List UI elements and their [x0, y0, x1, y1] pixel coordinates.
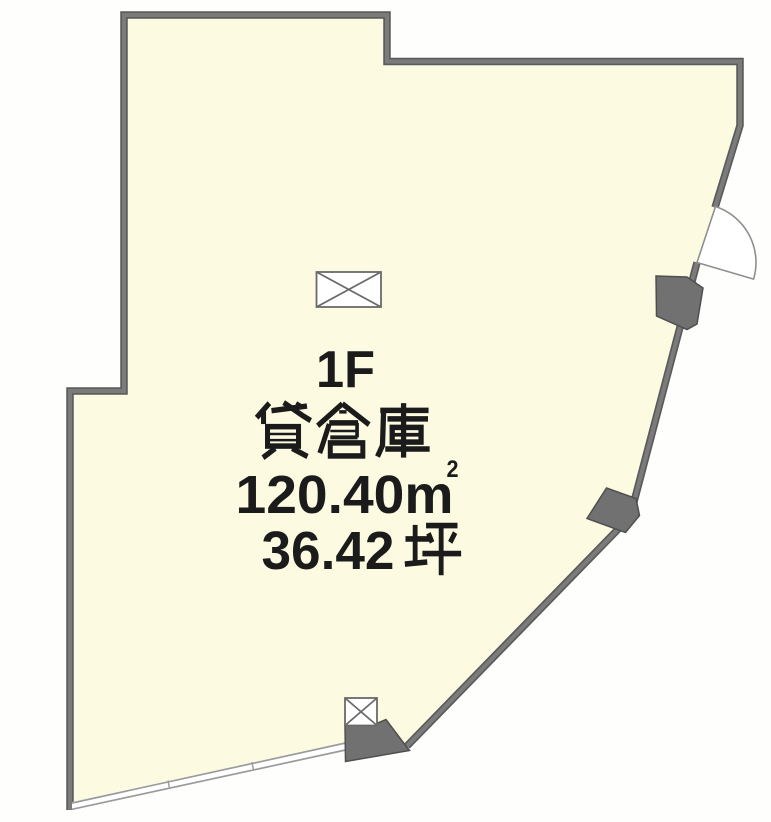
svg-text:120.40m: 120.40m: [236, 465, 454, 525]
svg-text:1F: 1F: [316, 341, 375, 399]
svg-text:2: 2: [447, 456, 459, 483]
svg-text:36.42: 36.42: [262, 521, 395, 581]
